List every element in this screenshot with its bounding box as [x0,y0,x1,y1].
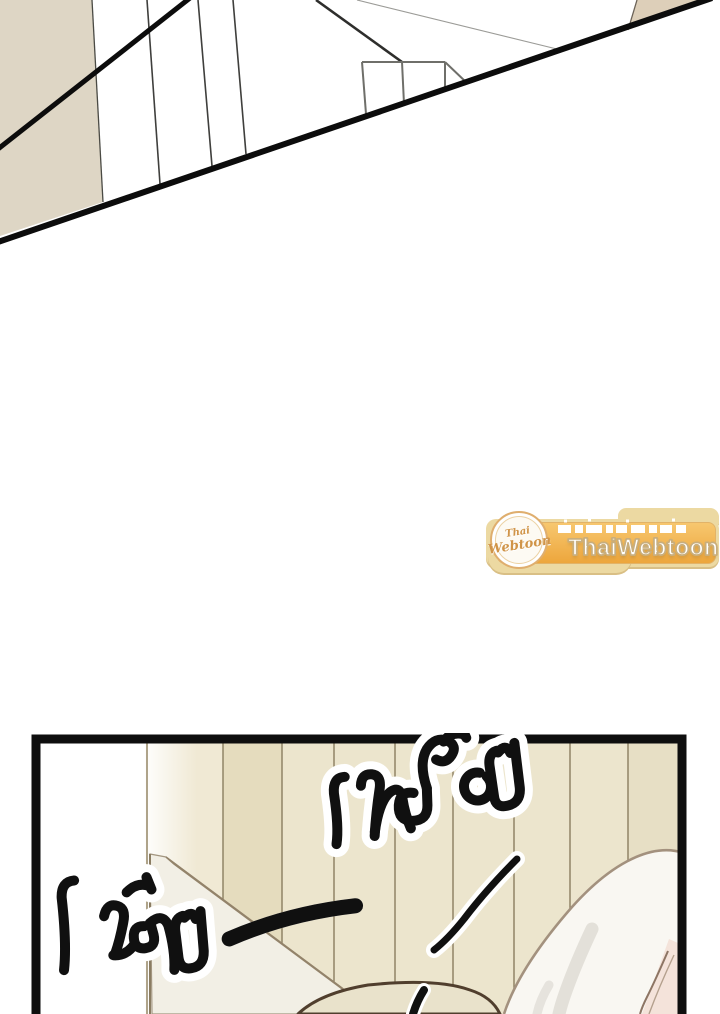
watermark-banner: เว็บสนุกที่แบ่งปันความสุขให้กับทุกคน Tha… [484,505,720,580]
ceiling-fixture-lines [316,0,565,114]
site-name-text: ThaiWebtoon [568,534,718,561]
wall-corner-lines [147,0,246,184]
logo-circle: Thai Webtoon [490,511,548,569]
webtoon-page: เว็บสนุกที่แบ่งปันความสุขให้กับทุกคน Tha… [0,0,720,1014]
logo-badge: Thai Webtoon [486,523,553,557]
panel-edge-lines [0,0,712,242]
bottom-comic-panel [0,733,720,1014]
ceiling-sketch-drawing [0,0,720,245]
